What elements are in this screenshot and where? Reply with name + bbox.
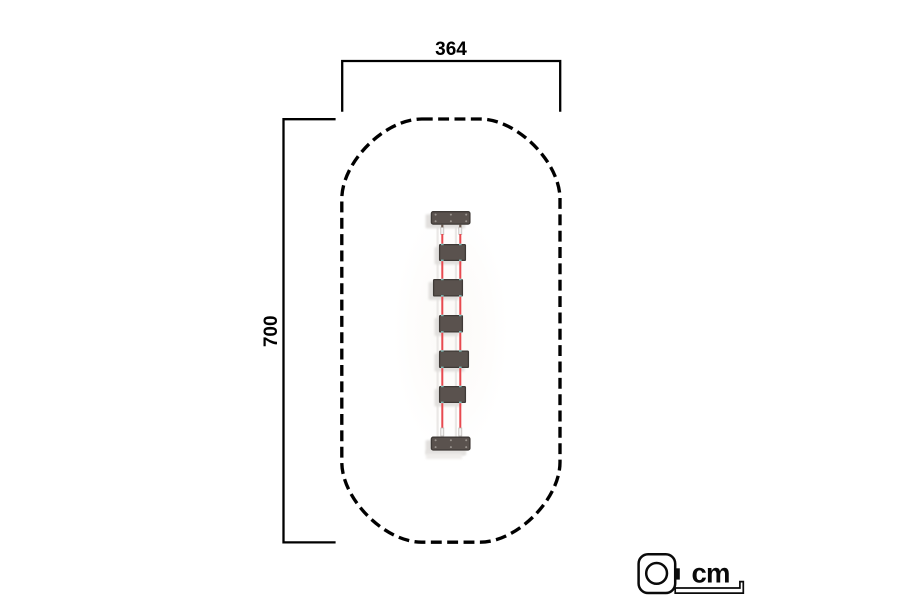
svg-text:700: 700 (261, 315, 282, 347)
svg-text:364: 364 (435, 39, 467, 60)
svg-text:cm: cm (692, 557, 730, 588)
